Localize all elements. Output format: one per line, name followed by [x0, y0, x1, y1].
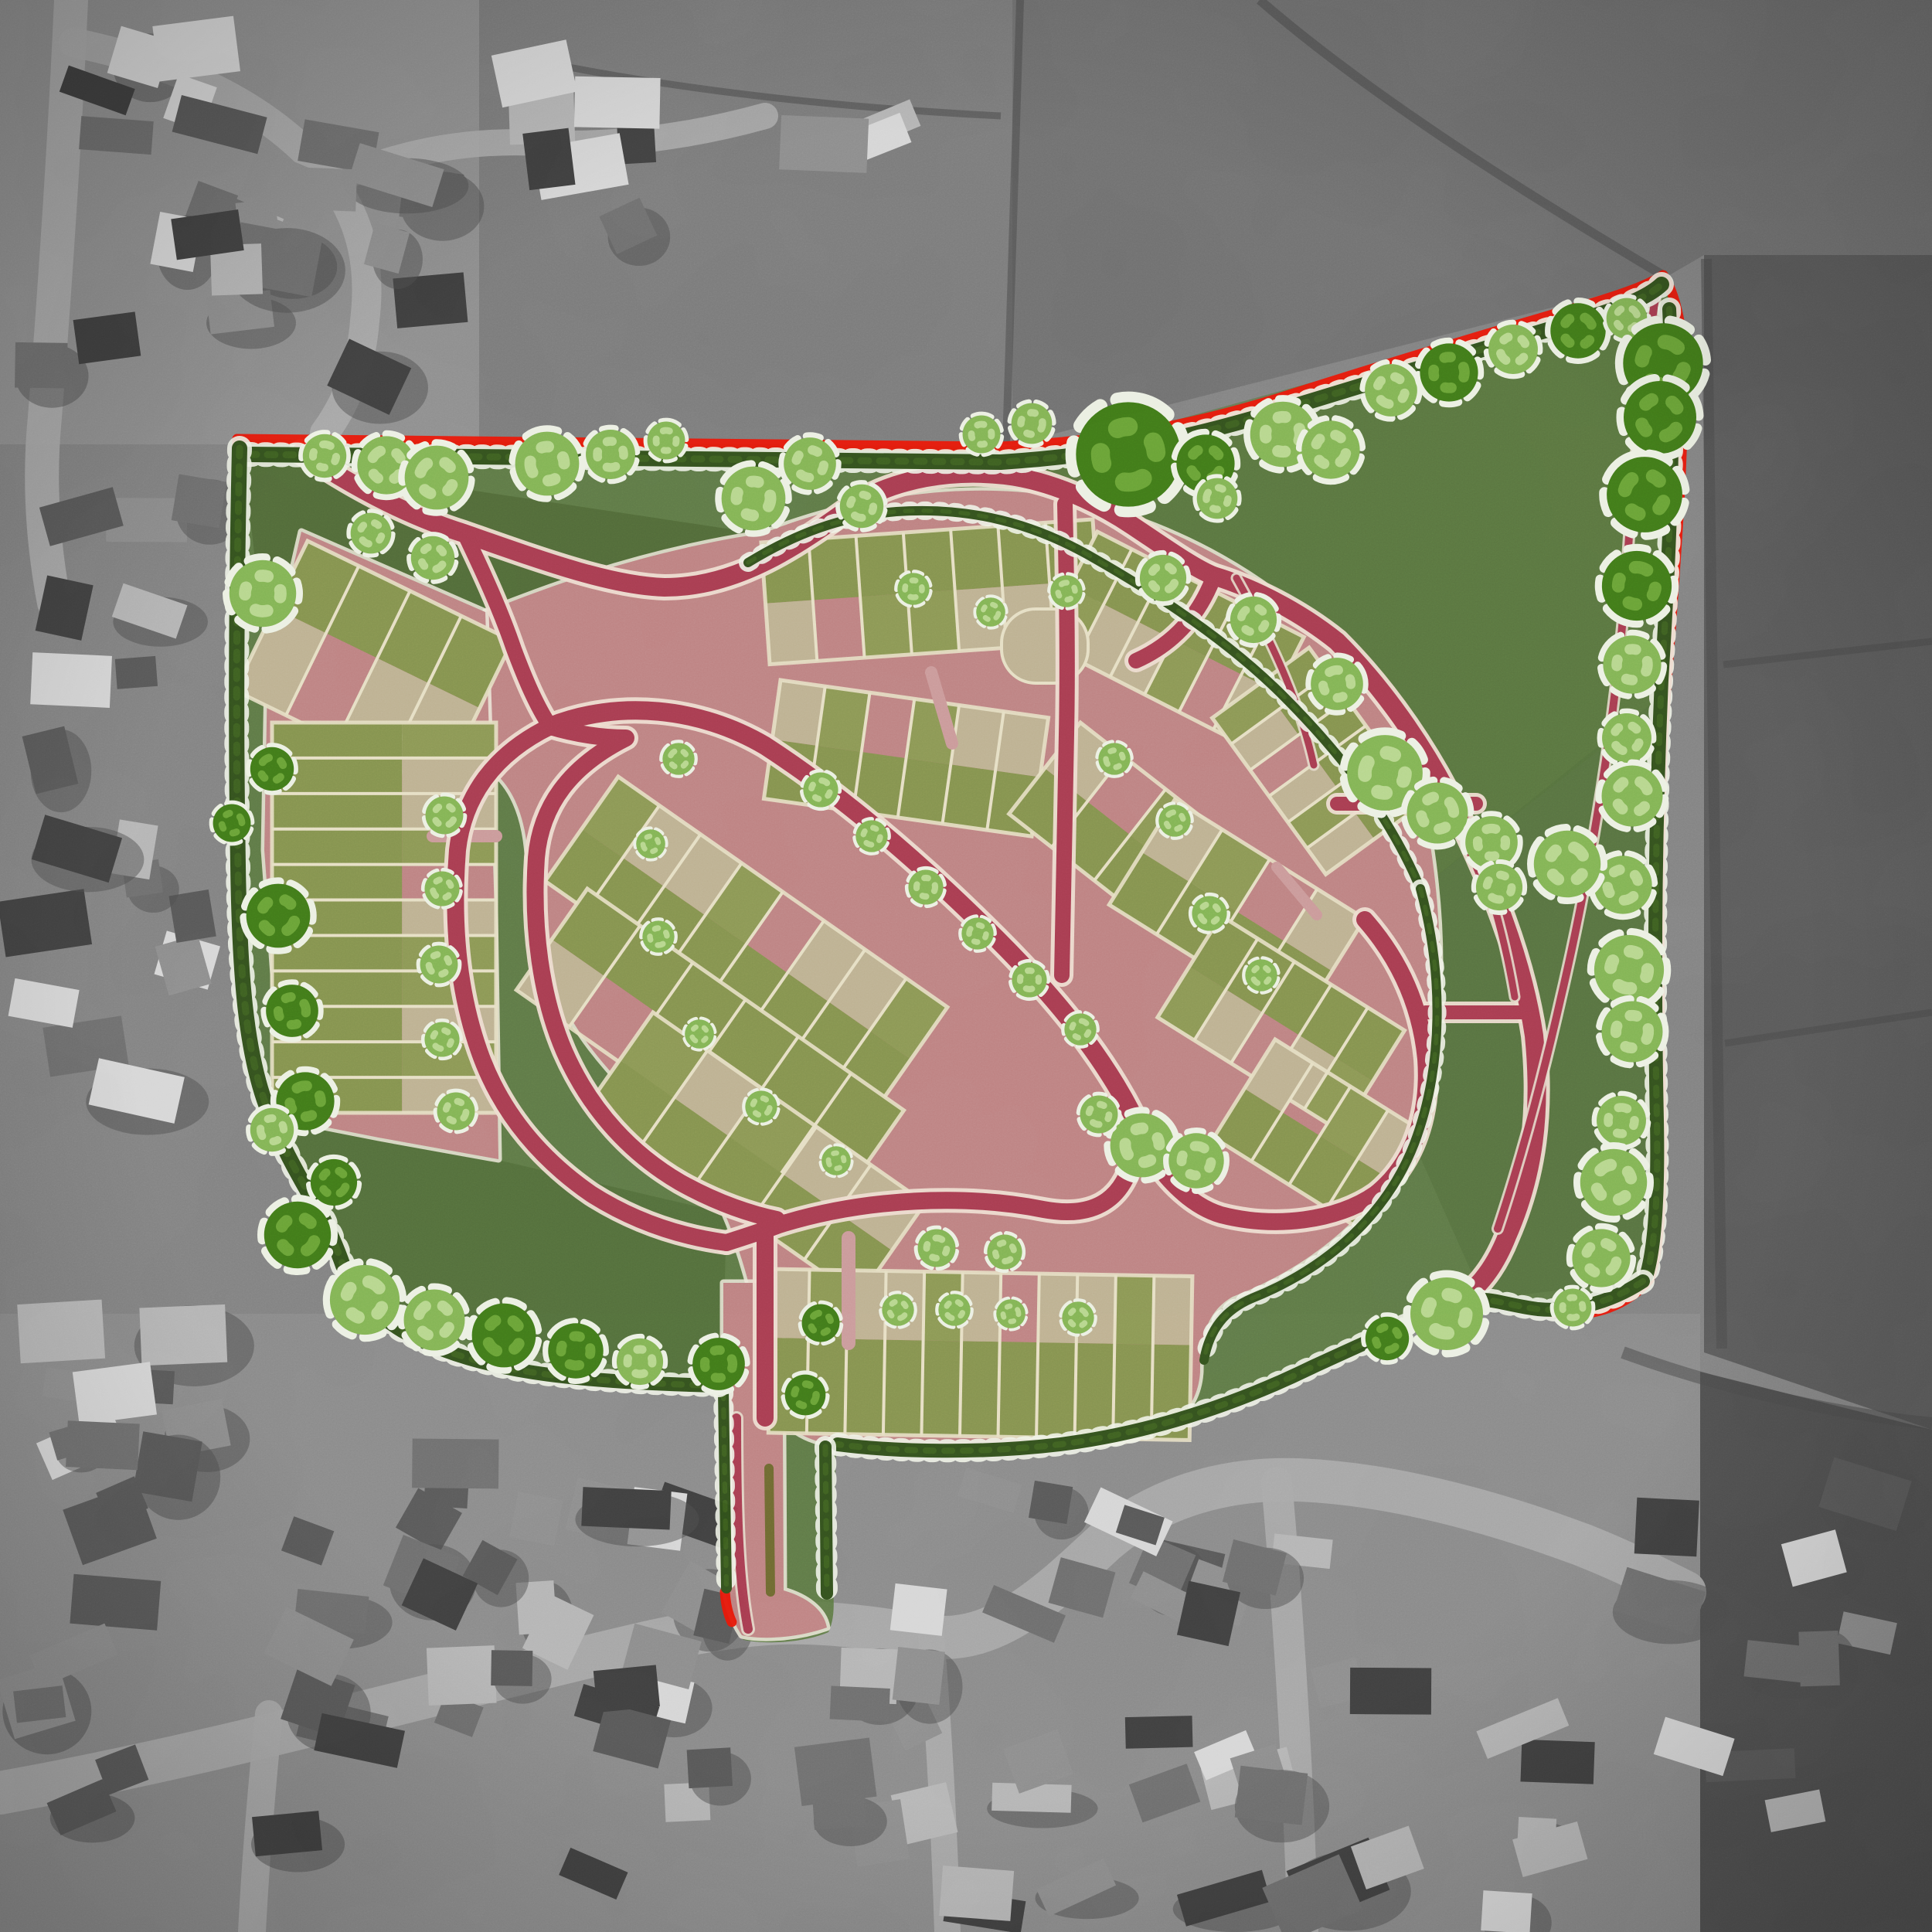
- masterplan-aerial-map: [0, 0, 1932, 1932]
- vignette: [0, 0, 1932, 1932]
- masterplan-svg: [0, 0, 1932, 1932]
